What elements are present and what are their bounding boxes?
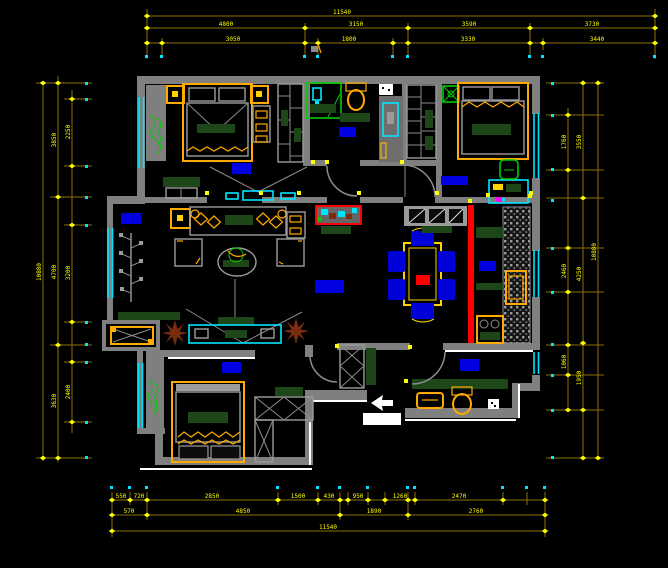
room-label-hallway <box>315 280 344 293</box>
closet-column <box>407 85 436 158</box>
bedroom-1 <box>150 84 307 200</box>
entry-text-block <box>363 413 401 425</box>
dim-label: 3150 <box>349 21 364 28</box>
sofa-pillow <box>195 213 208 225</box>
table-centerpiece <box>416 275 430 285</box>
highlighted-partition <box>468 205 474 343</box>
dim-label: 3850 <box>51 132 58 147</box>
door-arc-bedroom-2 <box>403 165 435 197</box>
hatched-wall <box>146 350 164 428</box>
room-label-bedroom-2 <box>441 176 468 185</box>
armchair <box>277 239 304 266</box>
room-label-living-room <box>121 213 141 224</box>
dining-chair <box>388 279 405 300</box>
dim-label: 2850 <box>205 493 220 500</box>
bed-drawer <box>211 446 240 459</box>
dim-label: 720 <box>134 493 145 500</box>
dim-label-top-total: 11540 <box>333 9 351 16</box>
room-label-kitchen <box>479 261 496 271</box>
dining-chair <box>438 279 455 300</box>
dining-room <box>388 228 455 322</box>
table-plant-icon <box>229 248 243 262</box>
dim-label: 2470 <box>452 493 467 500</box>
dim-label: 4800 <box>219 21 234 28</box>
dim-label-right-total: 10880 <box>591 243 598 261</box>
entry-door-arc <box>310 355 337 382</box>
kitchen <box>404 197 530 343</box>
dim-label: 4250 <box>576 266 583 281</box>
dim-label: 950 <box>353 493 364 500</box>
dim-label: 2250 <box>65 124 72 139</box>
magenta-marker <box>496 197 502 201</box>
dresser <box>163 177 200 187</box>
room-label-bedroom-3 <box>222 362 241 373</box>
dim-label: 1800 <box>342 36 357 43</box>
dim-label: 1890 <box>367 508 382 515</box>
room-label-bathroom-2 <box>460 359 479 371</box>
dim-label: 4700 <box>51 264 58 279</box>
dim-label: 4850 <box>236 508 251 515</box>
dim-label: 3440 <box>590 36 605 43</box>
entry-arrow-icon <box>371 395 393 411</box>
pillow <box>219 88 245 101</box>
room-label-bedroom-1 <box>232 163 251 174</box>
door-arc-bathroom-1 <box>327 166 357 196</box>
dining-chair <box>411 231 434 246</box>
dim-label: 2760 <box>469 508 484 515</box>
tv <box>218 317 254 325</box>
dim-label: 1260 <box>393 493 408 500</box>
floor-plan-canvas[interactable]: 11540 4800 3150 3590 3730 3050 1800 3330… <box>0 0 668 568</box>
shower-head-icon <box>313 88 321 100</box>
dim-label: 3330 <box>461 36 476 43</box>
potted-plant-icon <box>283 318 309 344</box>
entry <box>310 345 401 425</box>
bedroom-2 <box>441 83 528 203</box>
dim-label: 430 <box>324 493 335 500</box>
dimension-chain-top: 11540 4800 3150 3590 3730 3050 1800 3330… <box>144 9 658 59</box>
dining-table <box>404 243 441 305</box>
bed-drawer <box>179 446 208 459</box>
floor-drain <box>488 399 499 409</box>
dim-label: 2400 <box>65 384 72 399</box>
living-room <box>118 207 309 346</box>
dim-label: 1950 <box>576 370 583 385</box>
dim-label: 1060 <box>561 354 568 369</box>
dining-chair <box>411 303 434 319</box>
dim-label-left-total: 10880 <box>36 263 43 281</box>
hatched-wall <box>146 85 166 161</box>
wardrobe <box>255 397 313 420</box>
cad-viewport[interactable]: 11540 4800 3150 3590 3730 3050 1800 3330… <box>0 0 668 568</box>
washer-box <box>379 84 393 95</box>
bedroom-3 <box>172 362 313 462</box>
hallway <box>315 206 361 293</box>
dim-label: 3630 <box>51 393 58 408</box>
dim-label: 3200 <box>65 265 72 280</box>
dim-label: 550 <box>116 493 127 500</box>
bathroom-1 <box>307 83 403 162</box>
dimension-chain-right: 1760 2460 1060 3550 4250 1950 10880 <box>546 80 604 460</box>
pillow <box>463 87 490 100</box>
bathroom-2 <box>412 359 508 414</box>
pillow <box>189 88 215 101</box>
dim-label: 3050 <box>226 36 241 43</box>
shoe-cabinet <box>340 345 364 388</box>
dim-label: 3730 <box>585 21 600 28</box>
room-label-bathroom-1 <box>339 127 356 137</box>
dim-label: 570 <box>124 508 135 515</box>
potted-plant-icon <box>162 320 188 346</box>
dim-label-bottom-total: 11540 <box>319 524 337 531</box>
dim-label: 3590 <box>462 21 477 28</box>
dim-label: 1760 <box>561 134 568 149</box>
bed <box>458 83 528 159</box>
dim-label: 3550 <box>576 134 583 149</box>
dining-chair <box>438 251 455 272</box>
dimension-chain-left: 3850 4700 3630 2250 3200 2400 10880 <box>36 76 92 462</box>
dim-label: 1500 <box>291 493 306 500</box>
sliding-door-track <box>226 193 238 199</box>
dimension-chain-bottom: 550 720 2850 1500 430 950 1260 2470 570 … <box>109 486 548 537</box>
dim-label: 2460 <box>561 263 568 278</box>
headboard <box>176 384 240 391</box>
dining-chair <box>388 251 405 272</box>
pillow <box>492 87 519 100</box>
